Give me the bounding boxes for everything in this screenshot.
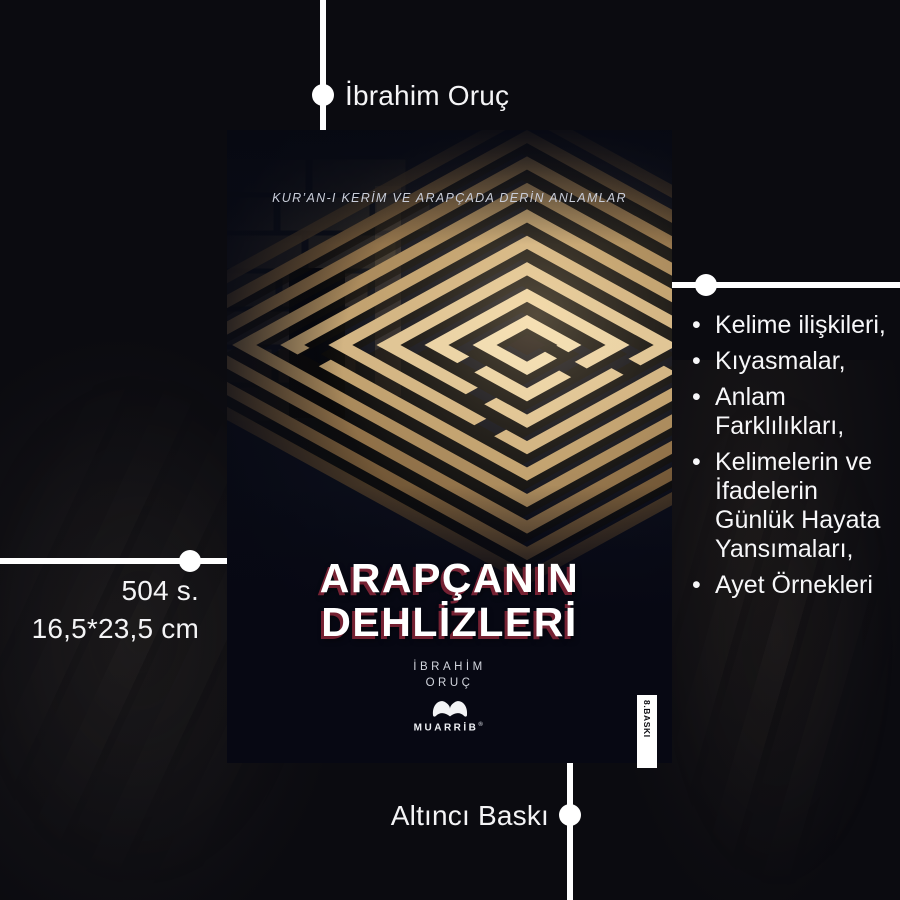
connector-dot-right	[695, 274, 717, 296]
pages-label: 504 s.	[0, 572, 199, 610]
feature-text: Anlam Farklılıkları,	[715, 383, 892, 441]
book-cover: KUR’AN-I KERİM VE ARAPÇADA DERİN ANLAMLA…	[227, 130, 672, 763]
connector-line-top	[320, 0, 326, 131]
cover-author-line2: ORUÇ	[227, 675, 672, 691]
connector-line-bottom	[567, 762, 573, 900]
promo-canvas: İbrahim Oruç 504 s. 16,5*23,5 cm Altıncı…	[0, 0, 900, 900]
feature-text: Kelimelerin ve İfadelerin Günlük Hayata …	[715, 448, 892, 564]
bullet-icon: •	[692, 383, 715, 441]
cover-title-line2: DEHLİZLERİ	[227, 600, 672, 644]
bowtie-logo-icon	[430, 697, 470, 719]
cover-author: İBRAHİM ORUÇ	[227, 659, 672, 691]
registered-mark: ®	[478, 722, 485, 728]
edition-stripe-text: 8.BASKI	[642, 700, 652, 738]
edition-stripe: 8.BASKI	[637, 695, 657, 768]
list-item: • Kelimelerin ve İfadelerin Günlük Hayat…	[692, 448, 892, 564]
bullet-icon: •	[692, 448, 715, 564]
publisher-name-text: MUARRİB	[414, 722, 479, 733]
cover-title-line1: ARAPÇANIN	[227, 556, 672, 600]
list-item: • Kelime ilişkileri,	[692, 311, 892, 340]
feature-text: Kıyasmalar,	[715, 347, 892, 376]
edition-label: Altıncı Baskı	[250, 800, 549, 832]
feature-text: Kelime ilişkileri,	[715, 311, 892, 340]
publisher-logo: MUARRİB®	[227, 697, 672, 733]
list-item: • Kıyasmalar,	[692, 347, 892, 376]
specs-label: 504 s. 16,5*23,5 cm	[0, 572, 199, 648]
publisher-name: MUARRİB®	[227, 722, 672, 733]
dimensions-label: 16,5*23,5 cm	[0, 610, 199, 648]
connector-dot-top	[312, 84, 334, 106]
connector-dot-bottom	[559, 804, 581, 826]
cover-title: ARAPÇANIN DEHLİZLERİ	[227, 556, 672, 644]
cover-tagline: KUR’AN-I KERİM VE ARAPÇADA DERİN ANLAMLA…	[227, 191, 672, 205]
feature-text: Ayet Örnekleri	[715, 571, 892, 600]
author-label: İbrahim Oruç	[345, 80, 509, 112]
cover-author-line1: İBRAHİM	[227, 659, 672, 675]
list-item: • Ayet Örnekleri	[692, 571, 892, 600]
list-item: • Anlam Farklılıkları,	[692, 383, 892, 441]
feature-list: • Kelime ilişkileri, • Kıyasmalar, • Anl…	[692, 311, 892, 607]
connector-dot-left	[179, 550, 201, 572]
bullet-icon: •	[692, 571, 715, 600]
bullet-icon: •	[692, 347, 715, 376]
bullet-icon: •	[692, 311, 715, 340]
